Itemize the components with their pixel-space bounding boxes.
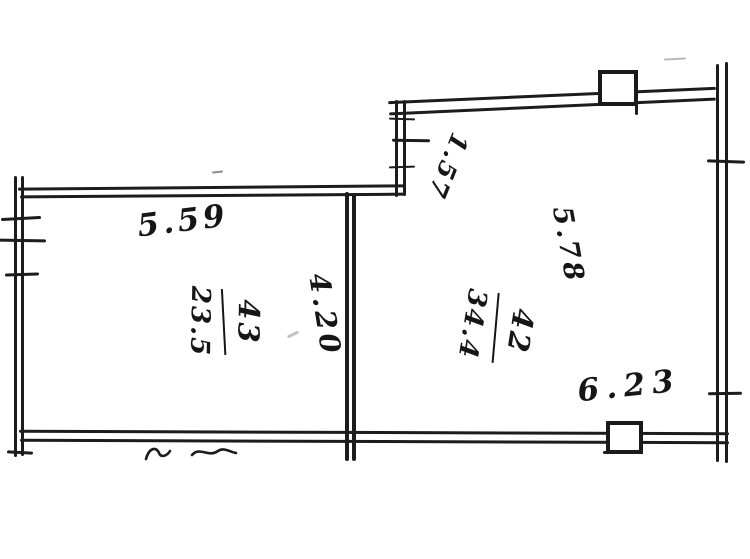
room-left-fraction-bar: [221, 289, 226, 355]
dimension-label-middle-wall-height: 4.20: [302, 271, 348, 359]
stray-pen-marks: [142, 443, 242, 463]
wall-middle-left-line: [345, 192, 349, 461]
top-wall-column-block: [598, 70, 638, 106]
top-wall-column-tick: [635, 96, 638, 115]
wall-right-inner-line: [716, 64, 719, 462]
wall-left-tick-3: [5, 272, 39, 276]
pen-speck-2: [664, 57, 686, 60]
room-label-left: 43 23.5: [183, 276, 266, 367]
wall-left-tick-2: [0, 239, 46, 243]
floor-plan-scan: 5.59 1.57 4.20 5.78 6.23 43 23.5 42 34.4: [0, 0, 750, 559]
room-right-number: 42: [496, 282, 544, 382]
dimension-label-top-left-width: 5.59: [135, 198, 230, 245]
bottom-wall-column-stub: [603, 451, 616, 454]
wall-step-tick-1: [389, 118, 415, 121]
room-right-fraction-bar: [491, 293, 499, 363]
wall-right-tick-1: [707, 159, 745, 163]
wall-step-tick-3: [389, 166, 415, 169]
dimension-label-right-wall-height: 5.78: [546, 204, 590, 286]
bottom-wall-column-block: [606, 421, 643, 454]
wall-middle-right-line: [352, 193, 356, 461]
wall-right-outer-line: [725, 62, 728, 463]
room-left-number: 43: [230, 277, 265, 368]
wall-step-tick-2: [392, 139, 430, 143]
room-left-area: 23.5: [183, 276, 214, 367]
wall-top-left-upper-line: [18, 184, 406, 190]
room-right-area: 34.4: [448, 274, 493, 373]
wall-right-tick-2: [708, 392, 742, 396]
pen-speck-1: [212, 170, 223, 173]
wall-left-foot: [7, 450, 33, 454]
pen-speck-3: [287, 331, 299, 339]
room-label-right: 42 34.4: [448, 274, 543, 382]
dimension-label-bottom-width: 6.23: [576, 363, 683, 410]
